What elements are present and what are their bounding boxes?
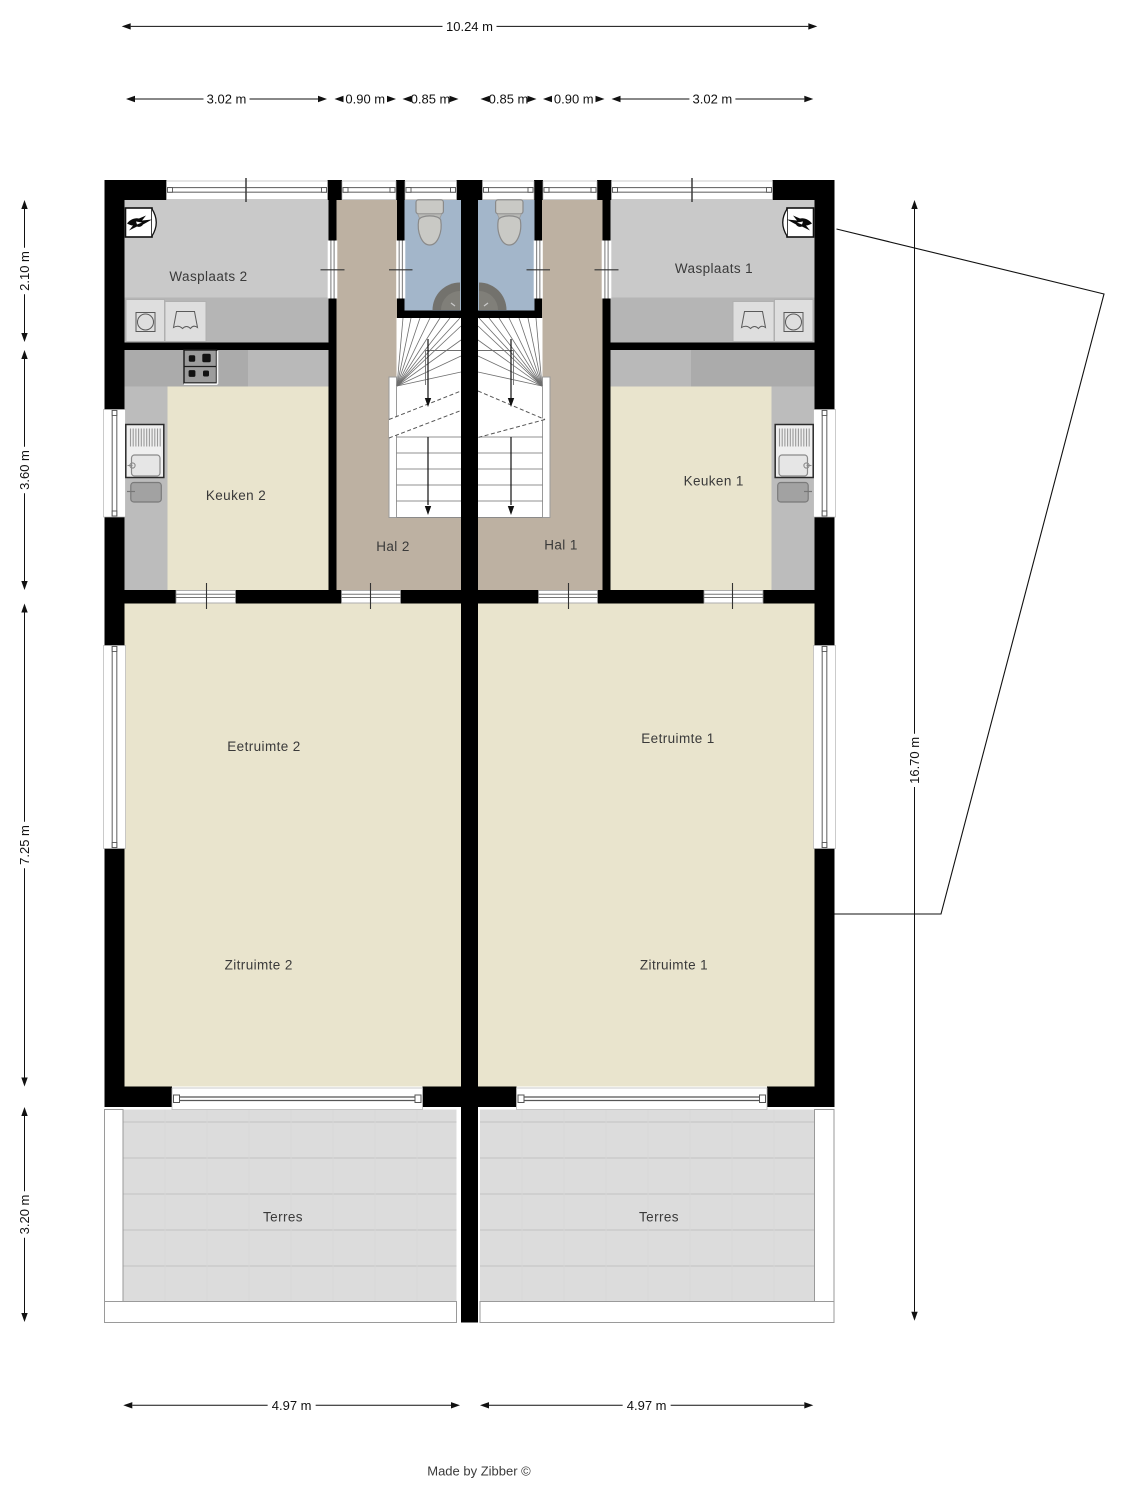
svg-text:0.85 m: 0.85 m xyxy=(411,92,451,107)
svg-text:Hal 2: Hal 2 xyxy=(376,539,410,554)
svg-text:16.70 m: 16.70 m xyxy=(907,737,922,784)
svg-text:0.90 m: 0.90 m xyxy=(345,92,385,107)
svg-text:4.97 m: 4.97 m xyxy=(627,1398,667,1413)
svg-text:10.24 m: 10.24 m xyxy=(446,19,493,34)
svg-text:Terres: Terres xyxy=(263,1210,303,1225)
svg-text:Keuken 1: Keuken 1 xyxy=(684,474,744,489)
svg-text:Hal 1: Hal 1 xyxy=(544,538,578,553)
svg-text:3.02 m: 3.02 m xyxy=(207,92,247,107)
svg-text:3.20 m: 3.20 m xyxy=(17,1195,32,1235)
svg-text:Eetruimte 2: Eetruimte 2 xyxy=(227,739,300,754)
svg-text:7.25 m: 7.25 m xyxy=(17,825,32,865)
svg-text:Terres: Terres xyxy=(639,1210,679,1225)
svg-text:Eetruimte 1: Eetruimte 1 xyxy=(641,731,714,746)
svg-text:Wasplaats 1: Wasplaats 1 xyxy=(675,261,753,276)
svg-text:Wasplaats 2: Wasplaats 2 xyxy=(169,269,247,284)
svg-text:Zitruimte 2: Zitruimte 2 xyxy=(225,958,293,973)
svg-text:2.10 m: 2.10 m xyxy=(17,251,32,291)
svg-text:4.97 m: 4.97 m xyxy=(272,1398,312,1413)
svg-text:Zitruimte 1: Zitruimte 1 xyxy=(640,958,708,973)
svg-text:0.90 m: 0.90 m xyxy=(554,92,594,107)
svg-text:3.60 m: 3.60 m xyxy=(17,450,32,490)
svg-text:Made by Zibber ©: Made by Zibber © xyxy=(427,1464,531,1479)
svg-text:0.85 m: 0.85 m xyxy=(489,92,529,107)
svg-text:Keuken 2: Keuken 2 xyxy=(206,488,266,503)
svg-text:3.02 m: 3.02 m xyxy=(693,92,733,107)
